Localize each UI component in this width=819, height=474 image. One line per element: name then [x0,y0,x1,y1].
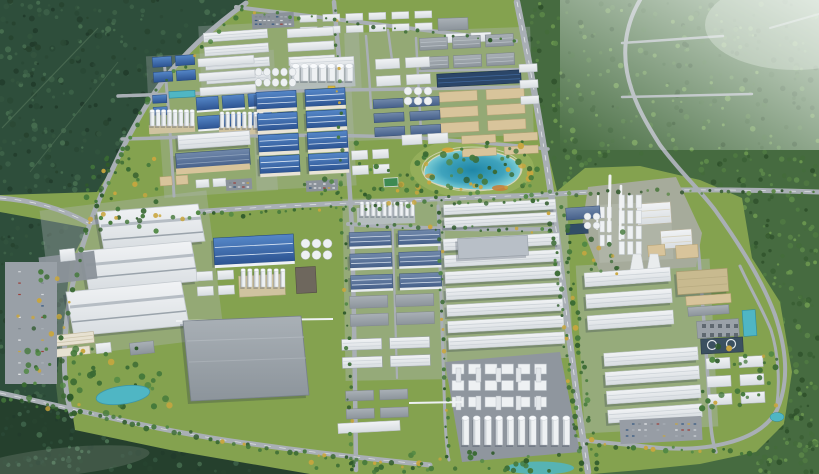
east-retention-pond [770,413,784,422]
sw-equipment-pad [129,341,154,355]
water-treatment-tanks [742,310,757,337]
plant-chimney-2 [609,176,610,231]
treatment-pool [169,90,195,98]
tall-center-block [455,235,529,261]
plant-tan-annex [676,244,699,259]
aerial-scene-svg [0,0,819,474]
north-gray-building [438,17,468,30]
silo-plant-pipeline [409,402,463,403]
industrial-park-aerial-render [0,0,819,474]
gate-office [59,248,75,262]
south-blue-hall [211,234,295,268]
office-parking [226,178,253,191]
basketball-court [384,178,398,187]
silo-row-1 [149,110,194,128]
west-white-rows [198,55,256,96]
brown-gabled-building [295,266,316,293]
east-tan-building [674,268,729,297]
ne-east-small-buildings [519,64,539,105]
sw-utility-box [96,342,112,354]
east-parking-lot [619,416,702,444]
east-white-rows-north [582,267,674,333]
screenshot-canvas [0,0,819,474]
